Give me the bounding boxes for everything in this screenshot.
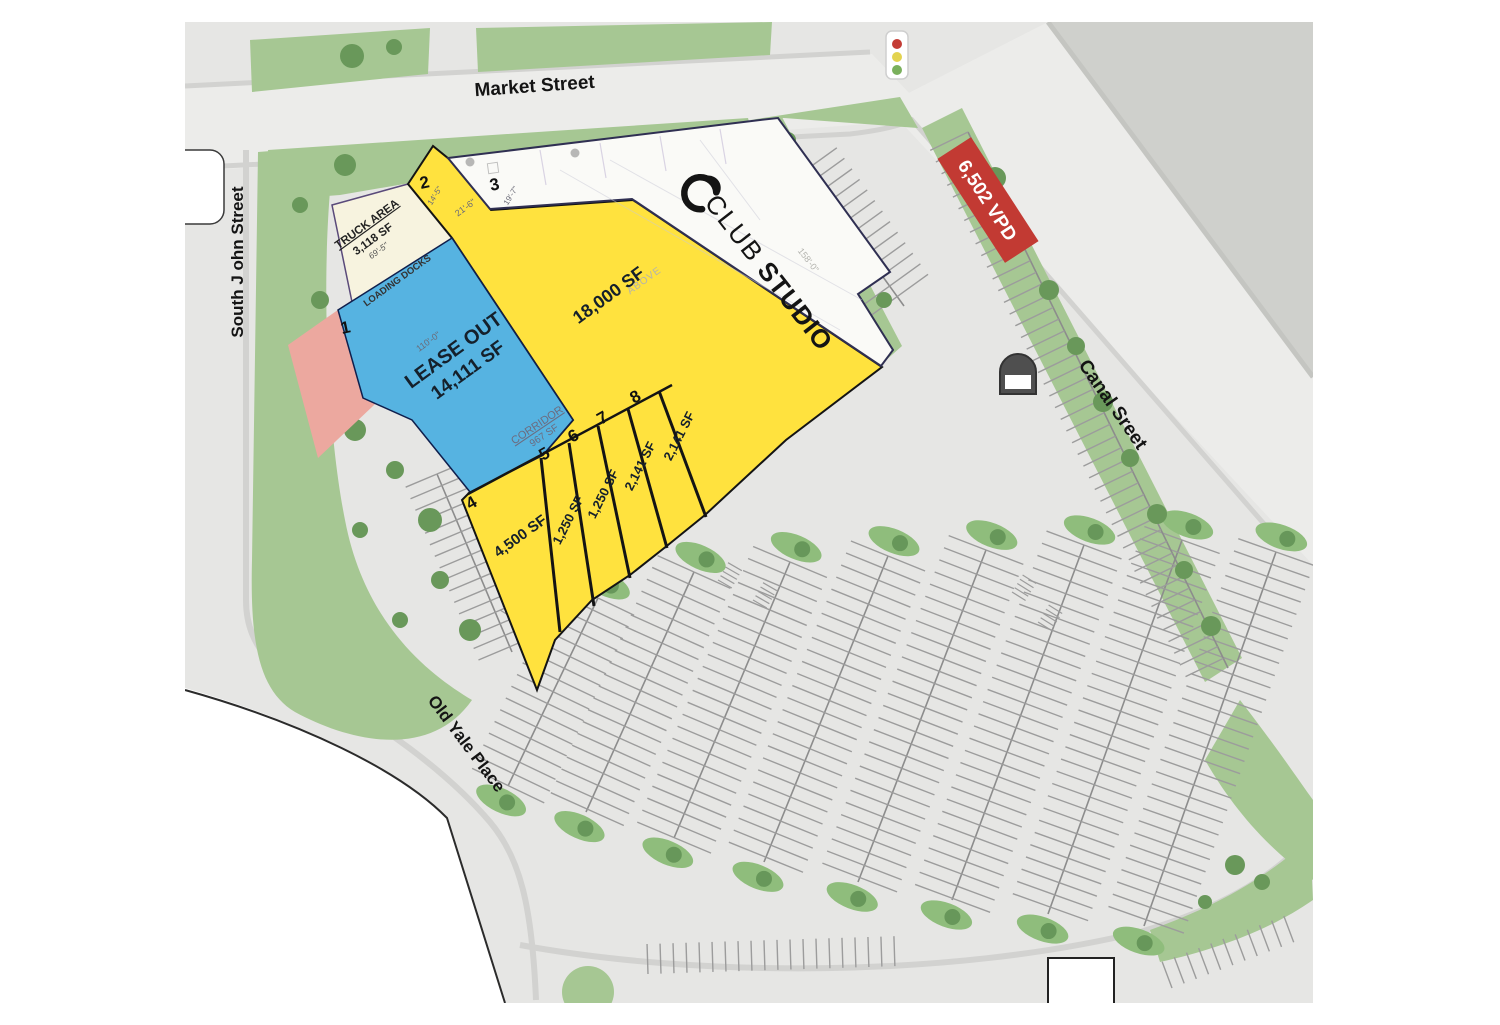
margin-left xyxy=(0,0,185,1025)
site-plan: Market Street South J ohn Street Canal S… xyxy=(0,0,1500,1025)
margin-right xyxy=(1313,0,1500,1025)
south-john-street-label: South J ohn Street xyxy=(228,186,247,337)
site-plan-page: Market Street South J ohn Street Canal S… xyxy=(0,0,1500,1025)
monument-sign-icon xyxy=(1000,354,1036,394)
traffic-light-icon xyxy=(886,31,908,79)
margin-top xyxy=(0,0,1500,22)
bottom-building-cutout xyxy=(1048,958,1114,1004)
margin-bottom xyxy=(0,1003,1500,1025)
